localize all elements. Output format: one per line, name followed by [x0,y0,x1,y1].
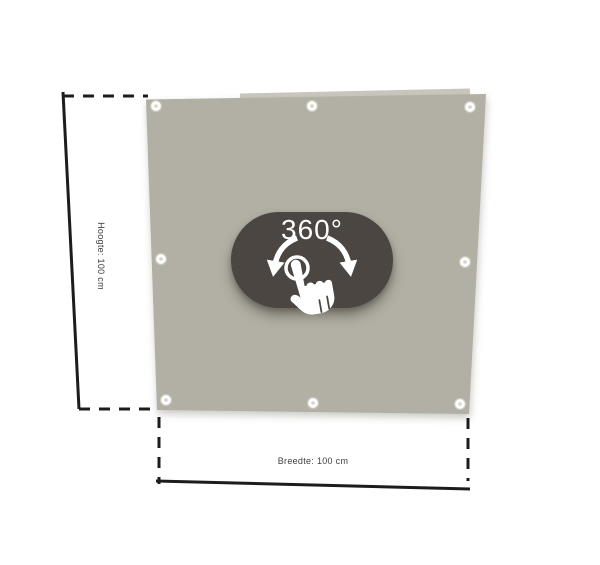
width-dimension-lines [156,417,470,489]
grommet-top-right [465,102,476,113]
grommet-top-left [151,101,162,112]
product-360-viewer: Hoogte: 100 cm Breedte: 100 cm 360° [0,0,600,565]
height-dimension-lines [63,92,153,409]
grommet-bottom-left [161,395,172,406]
grommet-top-center [307,101,318,112]
grommet-middle-right [460,257,471,268]
grommet-middle-left [156,254,167,265]
grommet-bottom-center [308,398,319,409]
rotate-gesture-art [231,212,393,308]
grommet-bottom-right [455,399,466,410]
width-dimension-line [156,481,470,489]
height-dimension-line [63,92,79,409]
width-dimension-label: Breedte: 100 cm [278,456,349,466]
height-dimension-label: Hoogte: 100 cm [96,222,106,290]
rotate-360-badge[interactable]: 360° [231,212,393,308]
rotate-right-arrow-icon [327,238,349,265]
